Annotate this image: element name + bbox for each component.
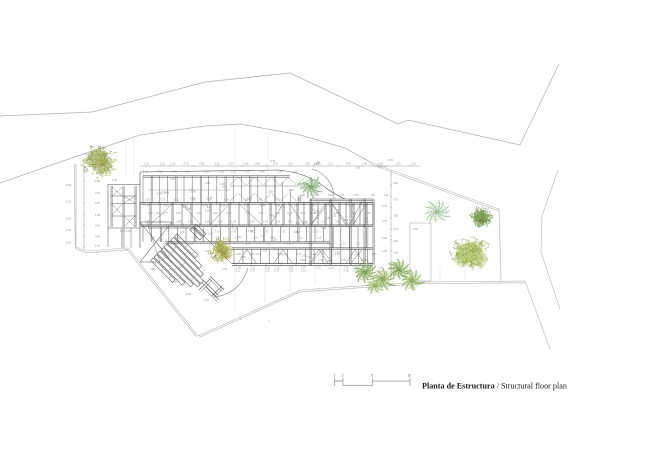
svg-text:0.50: 0.50: [321, 227, 326, 230]
svg-text:1.50: 1.50: [336, 221, 341, 224]
svg-text:0.60: 0.60: [95, 224, 101, 228]
svg-text:0.60: 0.60: [327, 243, 332, 246]
svg-text:0.30: 0.30: [148, 212, 153, 215]
svg-text:1.50: 1.50: [183, 206, 188, 209]
svg-text:0.25: 0.25: [246, 212, 251, 215]
svg-text:1.80: 1.80: [248, 230, 253, 233]
svg-text:3.20: 3.20: [393, 214, 399, 218]
svg-text:1.80: 1.80: [180, 231, 185, 234]
svg-text:0.75: 0.75: [335, 252, 340, 255]
svg-text:0.30: 0.30: [308, 243, 313, 246]
svg-text:1.25: 1.25: [282, 253, 287, 256]
svg-text:0.75: 0.75: [233, 227, 238, 230]
svg-text:1.10: 1.10: [262, 250, 267, 253]
svg-text:0.15: 0.15: [207, 197, 212, 200]
svg-text:1.80: 1.80: [384, 194, 389, 197]
svg-text:0.15: 0.15: [310, 209, 315, 212]
svg-text:0.50: 0.50: [224, 199, 229, 202]
svg-text:1.50: 1.50: [188, 221, 193, 224]
svg-text:0.15: 0.15: [363, 205, 368, 208]
svg-text:0.75: 0.75: [250, 270, 255, 273]
svg-text:1.10: 1.10: [66, 228, 72, 232]
svg-text:0.15: 0.15: [175, 237, 180, 240]
svg-text:1.10: 1.10: [66, 200, 72, 204]
svg-text:1.10: 1.10: [258, 212, 263, 215]
svg-text:5: 5: [371, 374, 373, 378]
svg-text:1.10: 1.10: [316, 237, 321, 240]
svg-text:1.50: 1.50: [205, 210, 210, 213]
svg-text:0.60: 0.60: [413, 228, 418, 231]
svg-text:2.50: 2.50: [186, 293, 191, 296]
svg-text:1.10: 1.10: [95, 244, 101, 248]
svg-text:0.90: 0.90: [378, 166, 383, 169]
svg-text:1.25: 1.25: [295, 222, 300, 225]
svg-text:1.10: 1.10: [190, 197, 195, 200]
svg-text:0.60: 0.60: [260, 171, 265, 174]
svg-text:0.30 1.25: 0.30 1.25: [120, 230, 131, 233]
svg-text:1.80: 1.80: [112, 179, 117, 182]
svg-text:2.45: 2.45: [277, 171, 282, 174]
svg-text:0.15: 0.15: [191, 229, 196, 232]
svg-text:3.20: 3.20: [300, 194, 305, 197]
svg-text:1.25: 1.25: [144, 163, 149, 166]
svg-text:0.90: 0.90: [150, 268, 155, 271]
svg-text:0.60: 0.60: [361, 259, 366, 262]
svg-text:0.75: 0.75: [276, 199, 281, 202]
svg-text:0.75: 0.75: [343, 219, 348, 222]
svg-text:2.45: 2.45: [274, 270, 279, 273]
svg-text:0.75: 0.75: [162, 212, 167, 215]
svg-text:2.45: 2.45: [388, 159, 393, 162]
svg-text:0.75: 0.75: [280, 206, 285, 209]
svg-text:1.80: 1.80: [257, 199, 262, 202]
svg-text:0.50: 0.50: [288, 163, 293, 166]
svg-text:Planta de Estructura / Structu: Planta de Estructura / Structural floor …: [422, 382, 567, 391]
svg-text:2.45: 2.45: [275, 212, 280, 215]
svg-text:0.15: 0.15: [236, 270, 241, 273]
svg-text:3.20: 3.20: [246, 243, 251, 246]
svg-text:0.90: 0.90: [325, 217, 330, 220]
svg-text:1.80: 1.80: [268, 191, 273, 194]
svg-text:0.50: 0.50: [370, 194, 375, 197]
svg-text:3.20: 3.20: [174, 199, 179, 202]
svg-text:1.50: 1.50: [289, 189, 294, 192]
svg-text:0.50: 0.50: [66, 241, 72, 245]
svg-text:0.75: 0.75: [281, 231, 286, 234]
svg-text:2.45: 2.45: [303, 221, 308, 224]
svg-text:3.20: 3.20: [300, 212, 305, 215]
svg-text:3.20: 3.20: [311, 253, 316, 256]
svg-text:0.90: 0.90: [294, 231, 299, 234]
svg-text:1.20: 1.20: [172, 281, 177, 284]
svg-text:1.25: 1.25: [355, 253, 360, 256]
svg-text:1.10: 1.10: [344, 270, 349, 273]
svg-text:0.90: 0.90: [300, 259, 305, 262]
svg-text:0.25: 0.25: [287, 212, 292, 215]
svg-text:2.10: 2.10: [364, 221, 369, 224]
svg-text:2.10: 2.10: [301, 270, 306, 273]
svg-text:0.30: 0.30: [328, 205, 333, 208]
svg-text:2.10: 2.10: [196, 212, 201, 215]
svg-text:2.10: 2.10: [328, 163, 333, 166]
svg-text:1.10: 1.10: [155, 212, 160, 215]
svg-text:0.30: 0.30: [250, 253, 255, 256]
svg-text:0.60: 0.60: [237, 236, 242, 239]
svg-text:3.20: 3.20: [197, 231, 202, 234]
svg-text:2.10: 2.10: [272, 238, 277, 241]
svg-text:0.75: 0.75: [95, 201, 101, 205]
svg-text:2.10: 2.10: [205, 221, 210, 224]
svg-text:1: 1: [333, 374, 335, 378]
svg-text:0.60: 0.60: [255, 163, 260, 166]
svg-text:0.15: 0.15: [95, 191, 101, 195]
svg-text:1.50: 1.50: [396, 163, 401, 166]
svg-text:0.90: 0.90: [199, 163, 204, 166]
svg-text:0.90: 0.90: [227, 212, 232, 215]
svg-text:0.25: 0.25: [382, 236, 388, 240]
svg-text:0.30: 0.30: [355, 167, 360, 170]
svg-text:0.90: 0.90: [170, 178, 175, 181]
svg-text:0.15: 0.15: [352, 221, 357, 224]
svg-text:0.50: 0.50: [322, 221, 327, 224]
svg-text:1.80: 1.80: [95, 213, 101, 217]
svg-text:0.50: 0.50: [172, 171, 177, 174]
svg-text:2.10: 2.10: [328, 267, 333, 270]
svg-text:0.75: 0.75: [313, 231, 318, 234]
svg-text:2.45: 2.45: [346, 163, 351, 166]
svg-text:1.80: 1.80: [301, 254, 306, 257]
svg-text:1.50: 1.50: [256, 253, 261, 256]
svg-text:2.45: 2.45: [362, 163, 367, 166]
svg-text:0.25: 0.25: [229, 163, 234, 166]
svg-text:0.90: 0.90: [66, 217, 72, 221]
svg-text:2.45: 2.45: [325, 260, 330, 263]
svg-text:1.10: 1.10: [298, 237, 303, 240]
svg-text:1.25: 1.25: [260, 235, 265, 238]
svg-text:3.20: 3.20: [188, 243, 193, 246]
svg-text:0.60: 0.60: [66, 183, 72, 187]
svg-text:0.15: 0.15: [273, 249, 278, 252]
svg-text:1.10: 1.10: [265, 270, 270, 273]
svg-text:0.60: 0.60: [95, 235, 101, 239]
svg-text:1.25: 1.25: [382, 249, 388, 253]
svg-text:2.10: 2.10: [171, 163, 176, 166]
svg-text:0.75: 0.75: [270, 160, 275, 163]
svg-text:2.10: 2.10: [215, 163, 220, 166]
svg-text:0.60: 0.60: [269, 214, 274, 217]
svg-text:2.10: 2.10: [253, 237, 258, 240]
svg-text:2.10: 2.10: [215, 231, 220, 234]
svg-text:0.25: 0.25: [297, 199, 302, 202]
svg-text:1.10: 1.10: [164, 205, 169, 208]
svg-text:0.75: 0.75: [231, 231, 236, 234]
svg-text:0.30: 0.30: [250, 221, 255, 224]
svg-text:0.90: 0.90: [176, 221, 181, 224]
svg-text:0.90: 0.90: [243, 163, 248, 166]
svg-text:0.45: 0.45: [222, 268, 227, 271]
svg-text:0.50: 0.50: [305, 163, 310, 166]
svg-text:2: 2: [342, 374, 344, 378]
svg-text:1.80: 1.80: [393, 250, 399, 254]
svg-text:0.90: 0.90: [264, 231, 269, 234]
svg-text:0.15: 0.15: [341, 243, 346, 246]
svg-text:3.20: 3.20: [150, 237, 155, 240]
svg-text:1.50: 1.50: [331, 215, 336, 218]
svg-text:1.50: 1.50: [318, 259, 323, 262]
svg-text:0.25: 0.25: [355, 243, 360, 246]
svg-text:0.75: 0.75: [393, 227, 399, 231]
svg-text:1.25: 1.25: [354, 194, 359, 197]
svg-text:3.20: 3.20: [205, 182, 210, 185]
svg-text:0.75: 0.75: [393, 198, 399, 202]
svg-text:2.45: 2.45: [263, 221, 268, 224]
svg-text:3.20: 3.20: [160, 163, 165, 166]
svg-text:3.20: 3.20: [244, 205, 249, 208]
svg-text:1.10: 1.10: [145, 205, 150, 208]
svg-text:0.15: 0.15: [316, 267, 321, 270]
svg-text:3.20: 3.20: [185, 171, 190, 174]
svg-text:0.30: 0.30: [393, 181, 399, 185]
svg-text:1.50: 1.50: [231, 221, 236, 224]
svg-text:1.25: 1.25: [306, 256, 311, 259]
svg-text:2.45: 2.45: [294, 205, 299, 208]
svg-text:0.25: 0.25: [393, 239, 399, 243]
svg-text:10: 10: [407, 374, 411, 378]
svg-text:1.80: 1.80: [207, 206, 212, 209]
svg-text:3.20: 3.20: [411, 163, 416, 166]
svg-text:0.75: 0.75: [158, 239, 163, 242]
svg-text:3.20: 3.20: [213, 212, 218, 215]
svg-text:0.75: 0.75: [382, 204, 388, 208]
svg-text:0.75: 0.75: [160, 199, 165, 202]
svg-text:1.80: 1.80: [191, 191, 196, 194]
svg-text:1.80: 1.80: [145, 221, 150, 224]
svg-text:1.10: 1.10: [158, 221, 163, 224]
svg-text:1.10: 1.10: [208, 233, 213, 236]
svg-text:1.80: 1.80: [310, 205, 315, 208]
svg-text:2.10: 2.10: [220, 183, 225, 186]
svg-text:0.30: 0.30: [363, 217, 368, 220]
svg-text:3.20: 3.20: [351, 212, 356, 215]
svg-text:2.45: 2.45: [314, 163, 319, 166]
svg-text:3.20: 3.20: [275, 221, 280, 224]
svg-text:3.20: 3.20: [288, 221, 293, 224]
svg-text:1.10: 1.10: [220, 205, 225, 208]
svg-text:0.75: 0.75: [218, 221, 223, 224]
svg-text:0.25: 0.25: [241, 256, 246, 259]
svg-text:1.10: 1.10: [348, 205, 353, 208]
svg-text:0.30: 0.30: [366, 212, 371, 215]
svg-text:3.20: 3.20: [266, 243, 271, 246]
svg-text:0.25: 0.25: [287, 243, 292, 246]
svg-text:2.45: 2.45: [261, 205, 266, 208]
svg-text:3.20: 3.20: [289, 270, 294, 273]
svg-text:2.45: 2.45: [328, 194, 333, 197]
svg-text:0.75: 0.75: [184, 163, 189, 166]
svg-text:0.60: 0.60: [176, 212, 181, 215]
svg-text:1.50: 1.50: [372, 253, 377, 256]
svg-text:0.50: 0.50: [245, 171, 250, 174]
svg-text:0.25: 0.25: [161, 192, 166, 195]
svg-text:1.25: 1.25: [247, 197, 252, 200]
svg-text:2.45: 2.45: [339, 194, 344, 197]
svg-text:0.60: 0.60: [192, 237, 197, 240]
svg-text:0.25: 0.25: [145, 199, 150, 202]
svg-text:0.75: 0.75: [382, 219, 388, 223]
svg-text:1.80: 1.80: [95, 179, 101, 183]
svg-text:0.30: 0.30: [204, 299, 209, 302]
svg-text:0.50: 0.50: [341, 259, 346, 262]
